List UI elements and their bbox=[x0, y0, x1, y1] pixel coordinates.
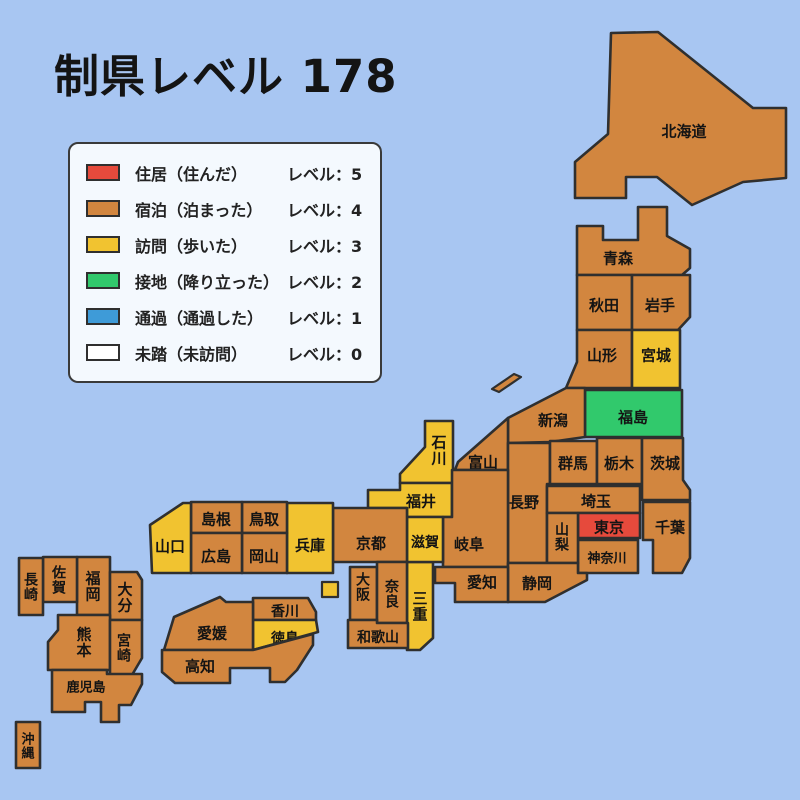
prefecture-label-nagasaki: 長崎 bbox=[24, 572, 39, 603]
prefecture-label-kagoshima: 鹿児島 bbox=[66, 680, 105, 696]
prefecture-label-hokkaido: 北海道 bbox=[661, 122, 706, 140]
island-awaji bbox=[322, 582, 338, 597]
prefecture-label-shiga: 滋賀 bbox=[411, 534, 439, 551]
prefecture-label-miyagi: 宮城 bbox=[641, 346, 671, 364]
prefecture-label-yamanashi: 山梨 bbox=[554, 522, 570, 553]
prefecture-label-mie: 三重 bbox=[412, 589, 427, 623]
prefecture-label-wakayama: 和歌山 bbox=[357, 629, 399, 646]
prefecture-label-kagawa: 香川 bbox=[270, 603, 299, 620]
legend-label-lv3: 訪問（歩いた） bbox=[135, 233, 287, 257]
prefecture-label-tokyo: 東京 bbox=[594, 518, 624, 536]
prefecture-label-miyazaki: 宮崎 bbox=[117, 632, 131, 664]
prefecture-label-ibaraki: 茨城 bbox=[650, 454, 680, 472]
legend-level-lv4: レベル：4 bbox=[287, 197, 362, 221]
legend-label-lv5: 住居（住んだ） bbox=[135, 161, 287, 185]
prefecture-label-oita: 大分 bbox=[117, 580, 132, 614]
prefecture-label-hiroshima: 広島 bbox=[201, 547, 231, 565]
prefecture-label-niigata: 新潟 bbox=[538, 411, 568, 429]
prefecture-label-fukushima: 福島 bbox=[617, 408, 648, 426]
prefecture-label-kyoto: 京都 bbox=[356, 534, 386, 552]
legend-swatch-lv0 bbox=[86, 344, 120, 361]
legend-swatch-lv5 bbox=[86, 164, 120, 181]
prefecture-label-kanagawa: 神奈川 bbox=[587, 551, 626, 567]
legend-item-lv1: 通過（通過した）レベル：1 bbox=[86, 308, 368, 325]
prefecture-label-saga: 佐賀 bbox=[51, 564, 66, 596]
prefecture-label-fukuoka: 福岡 bbox=[84, 569, 100, 603]
prefecture-label-yamaguchi: 山口 bbox=[155, 537, 185, 555]
legend-item-lv5: 住居（住んだ）レベル：5 bbox=[86, 164, 368, 181]
prefecture-label-yamagata: 山形 bbox=[587, 346, 617, 364]
prefecture-label-hyogo: 兵庫 bbox=[295, 536, 325, 554]
legend-level-lv3: レベル：3 bbox=[287, 233, 362, 257]
legend-item-lv3: 訪問（歩いた）レベル：3 bbox=[86, 236, 368, 253]
prefecture-label-nagano: 長野 bbox=[509, 493, 539, 511]
prefecture-label-aomori: 青森 bbox=[603, 249, 634, 267]
prefecture-label-kochi: 高知 bbox=[185, 657, 215, 675]
legend-label-lv0: 未踏（未訪問） bbox=[135, 341, 287, 365]
prefecture-label-iwate: 岩手 bbox=[644, 296, 675, 314]
legend-box: 住居（住んだ）レベル：5宿泊（泊まった）レベル：4訪問（歩いた）レベル：3接地（… bbox=[68, 142, 382, 383]
prefecture-label-shimane: 島根 bbox=[201, 510, 231, 528]
legend-level-lv0: レベル：0 bbox=[287, 341, 362, 365]
legend-swatch-lv1 bbox=[86, 308, 120, 325]
prefecture-label-ehime: 愛媛 bbox=[197, 624, 228, 642]
legend-swatch-lv3 bbox=[86, 236, 120, 253]
legend-level-lv5: レベル：5 bbox=[287, 161, 362, 185]
prefecture-label-okinawa: 沖縄 bbox=[21, 732, 34, 762]
legend-swatch-lv2 bbox=[86, 272, 120, 289]
prefecture-label-gifu: 岐阜 bbox=[454, 535, 484, 553]
prefecture-label-toyama: 富山 bbox=[468, 453, 498, 471]
legend-item-lv0: 未踏（未訪問）レベル：0 bbox=[86, 344, 368, 361]
prefecture-label-aichi: 愛知 bbox=[467, 573, 497, 591]
legend-label-lv2: 接地（降り立った） bbox=[135, 269, 287, 293]
legend-label-lv1: 通過（通過した） bbox=[135, 305, 287, 329]
prefecture-label-okayama: 岡山 bbox=[249, 547, 279, 565]
prefecture-label-fukui: 福井 bbox=[405, 492, 436, 510]
prefecture-label-chiba: 千葉 bbox=[655, 518, 686, 536]
legend-swatch-lv4 bbox=[86, 200, 120, 217]
legend-level-lv1: レベル：1 bbox=[287, 305, 362, 329]
legend-item-lv4: 宿泊（泊まった）レベル：4 bbox=[86, 200, 368, 217]
prefecture-label-osaka: 大阪 bbox=[356, 571, 371, 603]
page-title: 制県レベル 178 bbox=[54, 40, 398, 105]
prefecture-label-gunma: 群馬 bbox=[558, 454, 588, 472]
prefecture-label-akita: 秋田 bbox=[589, 296, 619, 314]
prefecture-label-ishikawa: 石川 bbox=[430, 433, 446, 467]
legend-label-lv4: 宿泊（泊まった） bbox=[135, 197, 287, 221]
prefecture-label-tottori: 鳥取 bbox=[249, 510, 280, 528]
prefecture-label-kumamoto: 熊本 bbox=[76, 625, 91, 659]
prefecture-label-saitama: 埼玉 bbox=[581, 492, 611, 510]
legend-level-lv2: レベル：2 bbox=[287, 269, 362, 293]
prefecture-label-nara: 奈良 bbox=[384, 578, 400, 610]
legend-item-lv2: 接地（降り立った）レベル：2 bbox=[86, 272, 368, 289]
prefecture-label-tochigi: 栃木 bbox=[604, 454, 635, 472]
japan-prefecture-map: 北海道青森秋田岩手山形宮城福島新潟富山石川福井長野岐阜群馬栃木茨城埼玉東京千葉神… bbox=[0, 0, 800, 800]
prefecture-label-shizuoka: 静岡 bbox=[522, 574, 552, 592]
